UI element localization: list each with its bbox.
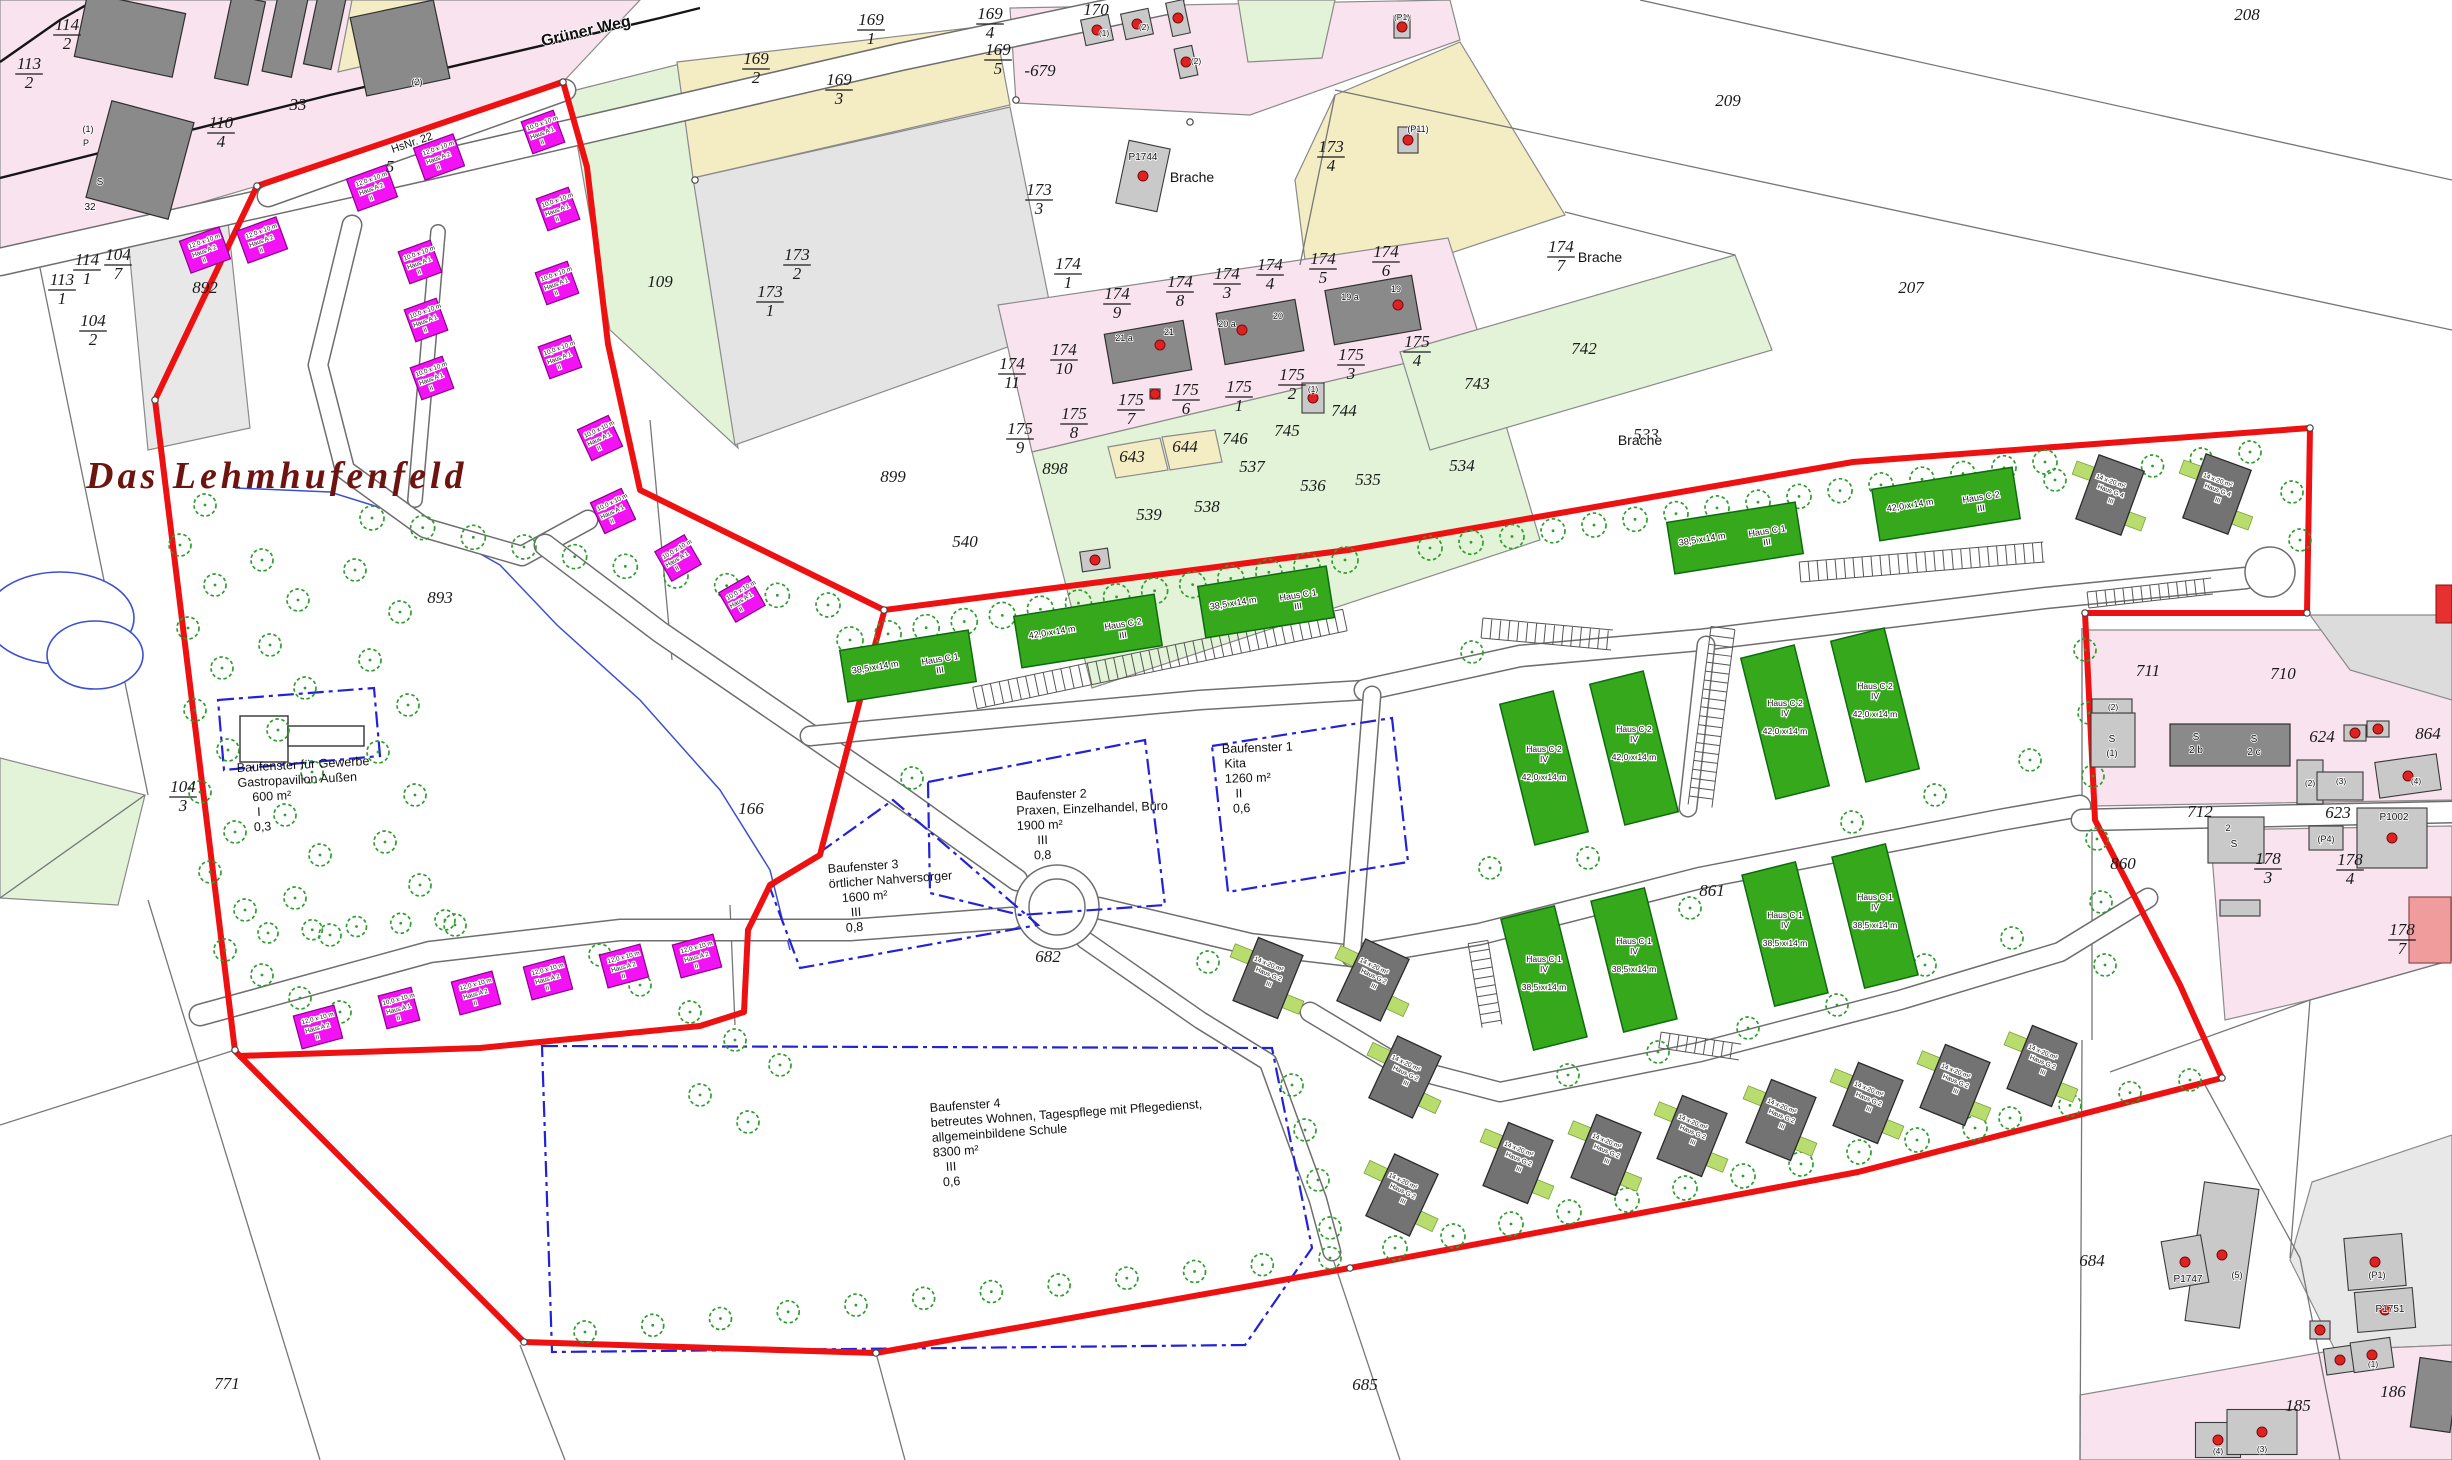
building-name-label: Haus C 2 [1767,698,1803,708]
map-text-label: (2) [412,77,423,87]
fraction-denominator: 2 [1288,384,1297,403]
tree-center-dot [827,604,830,607]
fraction-denominator: 3 [2263,868,2273,887]
tree-center-dot [419,884,422,887]
tree-center-dot [1836,1004,1839,1007]
tree-center-dot [2084,649,2087,652]
parcel-number-label: 771 [214,1374,240,1393]
baufenster-outline-bf4 [542,1046,1312,1352]
fraction-numerator: 174 [999,354,1025,373]
road-central-upper [545,545,1017,880]
fraction-numerator: 178 [2337,850,2363,869]
tree-center-dot [1470,541,1473,544]
tree-center-dot [1568,1211,1571,1214]
fraction-numerator: 169 [743,49,769,68]
tree-center-dot [922,1297,925,1300]
tree-center-dot [179,544,182,547]
parcel-number-fraction: 1043 [169,777,197,815]
tree-center-dot [1191,583,1194,586]
baufenster-text-line: 1260 m² [1225,770,1271,786]
parcel-number-label: 685 [1352,1375,1378,1394]
tree-center-dot [234,831,237,834]
planned-green-building [1500,691,1588,845]
parcel-number-label: 643 [1119,447,1145,466]
tree-center-dot [472,536,475,539]
baufenster-text-bf1: Baufenster 1Kita1260 m²II0,6 [1222,740,1295,816]
building-floors-label: IV [1540,964,1548,974]
building-dim-label: 38,5 x 14 m [1612,964,1656,974]
fraction-numerator: 104 [105,245,131,264]
map-text-label: S [2109,734,2116,745]
parcel-number-label: 710 [2270,664,2296,683]
fraction-denominator: 3 [1034,199,1044,218]
tree-center-dot [369,659,372,662]
fraction-numerator: 173 [784,245,810,264]
map-text-label: (2) [2305,778,2316,788]
parking-strip [1799,542,2045,582]
tree-center-dot [1115,596,1118,599]
fraction-denominator: 1 [766,301,775,320]
tree-center-dot [1077,602,1080,605]
red-dot-marker [1138,171,1148,181]
fraction-denominator: 10 [1056,359,1074,378]
tree-center-dot [651,1324,654,1327]
tree-center-dot [399,611,402,614]
red-dot-marker [2257,1427,2267,1437]
fraction-denominator: 3 [834,89,844,108]
tree-center-dot [371,517,374,520]
building-floors-label: IV [1630,946,1638,956]
baufenster-text-line: 0,6 [1233,801,1251,816]
parcel-number-fraction: 1047 [104,245,132,283]
fraction-denominator: 4 [1413,351,1422,370]
map-text-label: 2 c [2247,747,2260,758]
parcel-number-label: 745 [1274,421,1300,440]
tree-center-dot [1058,1284,1061,1287]
tree-center-dot [887,632,890,635]
fraction-denominator: 1 [58,289,67,308]
building-floors-label: IV [1871,691,1879,701]
road-connector-west [1352,695,1372,952]
tree-center-dot [2092,775,2095,778]
existing-building [2170,724,2290,766]
tree-center-dot [2151,465,2154,468]
fraction-denominator: 7 [114,264,124,283]
parcel-number-label: 684 [2079,1251,2105,1270]
baufenster-text-line: III [850,905,861,920]
tree-center-dot [1125,1277,1128,1280]
baufenster-text-bf2: Baufenster 2Praxen, Einzelhandel, Büro19… [1016,784,1170,863]
building-floors-label: III [1977,503,1986,514]
building-floors-label: III [1294,601,1303,612]
tree-center-dot [1675,512,1678,515]
tree-center-dot [584,1331,587,1334]
fraction-denominator: 4 [1266,274,1275,293]
tree-center-dot [1429,547,1432,550]
parcel-number-fraction: 1747 [1547,237,1575,275]
baufenster-text-line: III [945,1159,956,1174]
tree-center-dot [1757,501,1760,504]
tree-center-dot [2189,1079,2192,1082]
fraction-denominator: 11 [1004,373,1020,392]
map-text-label: (3) [2336,776,2347,786]
tree-center-dot [689,1011,692,1014]
map-text-label: 19 a [1341,292,1359,302]
parcel-number-label: 109 [647,272,673,291]
map-text-label: P1751 [2376,1304,2405,1315]
survey-point [2304,610,2310,616]
tree-center-dot [304,687,307,690]
map-text-label: 20 [1273,311,1283,321]
tree-center-dot [1747,1027,1750,1030]
parcel-number-label: 860 [2110,854,2136,873]
fraction-numerator: 174 [1257,255,1283,274]
fraction-numerator: 110 [209,113,234,132]
map-text-label: S [2231,839,2238,850]
tree-center-dot [1851,821,1854,824]
tree-center-dot [1471,651,1474,654]
fraction-numerator: 175 [1279,365,1305,384]
tree-center-dot [1001,614,1004,617]
fraction-numerator: 174 [1548,237,1574,256]
tree-center-dot [269,644,272,647]
map-text-label: P1744 [1129,152,1158,163]
fraction-numerator: 178 [2255,849,2281,868]
tree-center-dot [1229,577,1232,580]
gewerbe-building-outline [288,726,364,746]
tree-center-dot [1798,495,1801,498]
building-name-label: Haus C 2 [1526,744,1562,754]
parcel-number-label: 5 [386,157,395,176]
tree-center-dot [2129,1091,2132,1094]
tree-center-dot [224,949,227,952]
fraction-numerator: 173 [1026,180,1052,199]
planned-green-building [1832,844,1918,988]
parcel-boundary-line [1640,0,2452,180]
tree-center-dot [299,997,302,1000]
map-text-label: (1) [2107,748,2118,758]
fraction-denominator: 9 [1016,438,1025,457]
parcel-number-label: 538 [1194,497,1220,516]
building-dim-label: 38,5 x 14 m [1763,938,1807,948]
red-dot-marker [2180,1257,2190,1267]
fraction-numerator: 174 [1373,242,1399,261]
baufenster-text-line: 0,8 [845,920,863,935]
tree-center-dot [2299,539,2302,542]
parcel-number-label: 534 [1449,456,1475,475]
tree-center-dot [573,555,576,558]
baufenster-text-line: Baufenster 2 [1016,787,1087,803]
existing-building [350,0,450,96]
map-text-label: 2 [2225,823,2230,833]
parcel-palegreen-top-wedge [1238,0,1335,62]
tree-center-dot [187,627,190,630]
tree-center-dot [277,729,280,732]
tree-center-dot [2069,1104,2072,1107]
tree-center-dot [1921,478,1924,481]
baufenster-text-line: Baufenster 1 [1222,740,1293,756]
parcel-number-label: 535 [1355,470,1381,489]
tree-center-dot [1934,794,1937,797]
tree-center-dot [339,1011,342,1014]
tree-center-dot [1291,1084,1294,1087]
fraction-denominator: 8 [1176,291,1185,310]
tree-center-dot [407,704,410,707]
tree-center-dot [1742,1175,1745,1178]
planned-green-building [1590,671,1678,825]
map-text-label: (2) [1191,56,1202,66]
tree-center-dot [1924,964,1927,967]
building-name-label: Haus C 1 [1616,936,1652,946]
tree-center-dot [399,922,402,925]
tree-center-dot [227,749,230,752]
tree-center-dot [267,932,270,935]
tree-center-dot [779,1064,782,1067]
tree-center-dot [355,925,358,928]
building-dim-label: 42,0 x 14 m [1853,709,1897,719]
building-name-label: Haus C 1 [1526,954,1562,964]
tree-center-dot [1261,1263,1264,1266]
fraction-numerator: 169 [826,70,852,89]
parcel-number-label: 682 [1035,947,1061,966]
tree-center-dot [1684,1187,1687,1190]
parcel-number-label: 899 [880,467,906,486]
tree-center-dot [624,565,627,568]
pond [47,621,143,689]
fraction-numerator: 173 [1318,137,1344,156]
tree-center-dot [2096,838,2099,841]
baufenster-text-line: Kita [1224,756,1246,771]
parcel-number-label: 711 [2136,661,2160,680]
parcel-number-label: 539 [1136,505,1162,524]
parcel-number-fraction: 1741 [1054,254,1082,292]
tree-center-dot [1511,535,1514,538]
tree-center-dot [354,569,357,572]
tree-center-dot [329,934,332,937]
parcel-boundary-line [876,1353,905,1460]
fraction-numerator: 173 [757,282,783,301]
baufenster-text-line: 0,6 [942,1174,960,1189]
map-text-label: Brache [1578,249,1623,265]
tree-center-dot [1329,1227,1332,1230]
building-dim-label: 38,5 x 14 m [1853,920,1897,930]
fraction-denominator: 2 [752,68,761,87]
map-text-label: S [2251,734,2258,745]
building-floors-label: IV [1871,902,1879,912]
tree-center-dot [221,667,224,670]
tree-center-dot [2249,451,2252,454]
planned-green-building [1742,862,1828,1006]
survey-point [2082,610,2088,616]
red-dot-marker [1181,57,1191,67]
map-text-label: (2) [1139,22,1150,32]
tree-center-dot [1634,518,1637,521]
tree-center-dot [1800,1163,1803,1166]
red-dot-marker [1237,325,1247,335]
tree-center-dot [639,984,642,987]
red-dot-marker [1397,22,1407,32]
baufenster-text-line: 0,3 [254,819,272,834]
tree-center-dot [734,1039,737,1042]
fraction-denominator: 4 [2346,869,2355,888]
building-floors-label: IV [1781,708,1789,718]
tree-center-dot [244,909,247,912]
planned-green-building [1591,888,1677,1032]
tree-center-dot [855,1304,858,1307]
fraction-numerator: 169 [985,40,1011,59]
tree-center-dot [1858,1151,1861,1154]
parcel-number-label: 624 [2309,727,2335,746]
building-floors-label: III [1119,630,1128,641]
parcel-boundary-line [1330,1250,1400,1460]
outbuilding [2220,900,2260,916]
culdesac-circle [2245,547,2295,597]
survey-point [232,1047,238,1053]
tree-center-dot [1626,1199,1629,1202]
tree-center-dot [294,897,297,900]
map-text-label: 21 [1164,327,1174,337]
map-text-label: (2) [2108,702,2119,712]
baufenster-text-bf4: Baufenster 4betreutes Wohnen, Tagespfleg… [929,1082,1206,1190]
map-text-label: S [2193,732,2200,743]
parcel-number-label: -679 [1024,61,1056,80]
fraction-numerator: 114 [75,250,100,269]
tree-center-dot [2054,479,2057,482]
tree-center-dot [1344,559,1347,562]
red-dot-marker [1155,340,1165,350]
tree-center-dot [421,526,424,529]
baufenster-text-line: I [257,805,261,819]
map-text-label: Brache [1618,432,1663,448]
map-text-label: P1747 [2174,1274,2203,1285]
map-text-label: (1) [1099,28,1110,38]
fraction-numerator: 113 [50,270,74,289]
parcel-number-label: 746 [1222,429,1248,448]
tree-center-dot [1317,1179,1320,1182]
tree-center-dot [261,559,264,562]
red-dot-marker [1308,393,1318,403]
fraction-denominator: 4 [1327,156,1336,175]
baufenster-text-line: 1600 m² [841,888,888,905]
tree-center-dot [1329,1257,1332,1260]
tree-center-dot [1452,1235,1455,1238]
survey-point [881,607,887,613]
map-text-label: P1002 [2380,812,2409,823]
fraction-numerator: 175 [1007,419,1033,438]
parcel-number-label: 208 [2234,5,2260,24]
red-dot-marker [1403,135,1413,145]
road-bf2-north [810,690,1365,736]
tree-center-dot [2029,759,2032,762]
baufenster-text-line: 1900 m² [1017,817,1063,833]
tree-center-dot [2011,937,2014,940]
fraction-denominator: 1 [1235,396,1244,415]
fraction-denominator: 7 [1557,256,1567,275]
baufenster-text-line: 8300 m² [932,1143,979,1160]
building-dim-label: 42,0 x 14 m [1522,772,1566,782]
building-floors-label: IV [1781,920,1789,930]
parcel-number-label: 536 [1300,476,1326,495]
tree-center-dot [1306,565,1309,568]
parcel-boundary-line [0,1050,235,1125]
building-dim-label: 42,0 x 14 m [1612,752,1656,762]
tree-center-dot [1716,506,1719,509]
tree-center-dot [963,620,966,623]
tree-center-dot [2088,712,2091,715]
fraction-denominator: 5 [994,59,1003,78]
red-dot-marker [2315,1325,2325,1335]
tree-center-dot [1039,608,1042,611]
gewerbe-building-outline [240,716,288,762]
fraction-numerator: 174 [1104,284,1130,303]
parcel-number-label: 861 [1699,881,1725,900]
fraction-numerator: 174 [1214,264,1240,283]
building-name-label: Haus C 2 [1616,724,1652,734]
planned-green-building [1831,628,1919,782]
building-floors-label: III [936,665,945,676]
baufenster-text-line: II [1235,786,1242,800]
tree-center-dot [414,794,417,797]
tree-center-dot [1304,1129,1307,1132]
parcel-number-fraction: 1141 [73,250,101,288]
tree-center-dot [719,1317,722,1320]
fraction-numerator: 175 [1118,390,1144,409]
fraction-numerator: 113 [17,54,41,73]
survey-point [521,1339,527,1345]
tree-center-dot [261,974,264,977]
fraction-numerator: 174 [1167,272,1193,291]
tree-center-dot [2009,1117,2012,1120]
survey-point [254,183,260,189]
map-text-label: Brache [1170,169,1215,185]
fraction-denominator: 2 [89,330,98,349]
tree-center-dot [204,504,207,507]
tree-center-dot [1657,1051,1660,1054]
plan-title: Das Lehmhufenfeld [85,455,468,497]
roundabout-inner [1029,879,1085,935]
tree-center-dot [2044,461,2047,464]
parcel-number-label: 540 [952,532,978,551]
fraction-denominator: 9 [1113,303,1122,322]
fraction-denominator: 1 [83,269,92,288]
parcel-number-label: 185 [2285,1396,2311,1415]
tree-center-dot [1689,907,1692,910]
fraction-numerator: 169 [858,10,884,29]
tree-center-dot [1193,1270,1196,1273]
fraction-denominator: 8 [1070,423,1079,442]
map-text-label: (P4) [2317,834,2334,844]
map-text-label: (1) [83,124,94,134]
tree-center-dot [454,924,457,927]
tree-center-dot [1394,1247,1397,1250]
tree-center-dot [1207,961,1210,964]
parcel-number-label: 864 [2415,724,2441,743]
red-marker-rect [2436,585,2452,623]
building-name-label: Haus C 1 [1857,892,1893,902]
parcel-number-label: 209 [1715,91,1741,110]
tree-center-dot [2100,901,2103,904]
map-text-label: (1) [2368,1359,2379,1369]
fraction-denominator: 1 [1064,273,1073,292]
parcel-number-label: 166 [738,799,764,818]
tree-center-dot [1267,571,1270,574]
parcel-number-label: 170 [1083,0,1109,19]
fraction-numerator: 114 [55,15,80,34]
parcel-number-label: 892 [192,278,218,297]
tree-center-dot [2291,491,2294,494]
survey-point [2307,425,2313,431]
tree-center-dot [1880,484,1883,487]
